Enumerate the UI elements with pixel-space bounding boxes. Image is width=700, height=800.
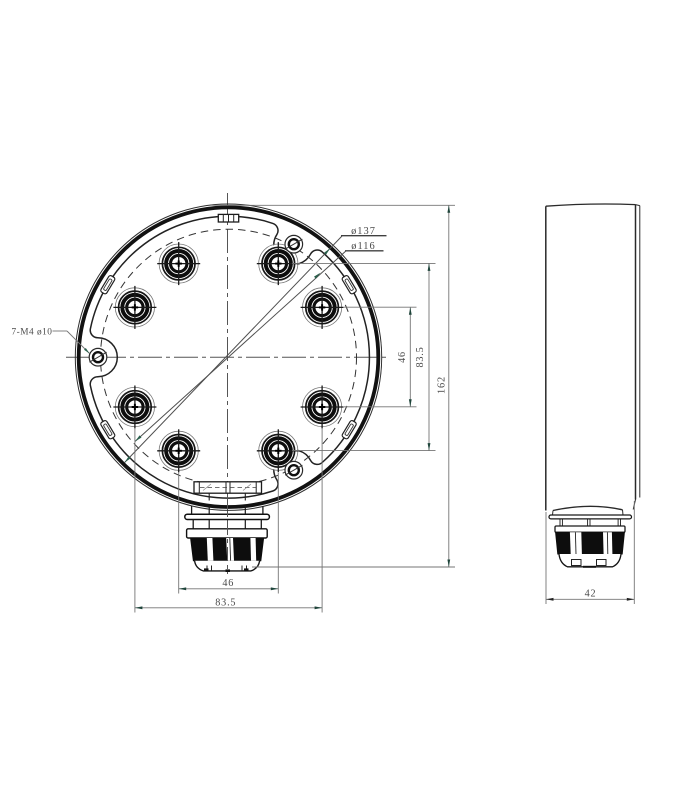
- svg-text:ø116: ø116: [351, 241, 375, 252]
- svg-text:83.5: 83.5: [415, 346, 426, 367]
- svg-text:42: 42: [585, 589, 597, 600]
- svg-text:46: 46: [397, 351, 408, 363]
- svg-text:46: 46: [222, 578, 234, 589]
- svg-text:7-M4 ø10: 7-M4 ø10: [12, 328, 53, 338]
- svg-text:ø137: ø137: [351, 226, 376, 237]
- svg-text:83.5: 83.5: [215, 597, 236, 608]
- svg-text:162: 162: [437, 376, 448, 394]
